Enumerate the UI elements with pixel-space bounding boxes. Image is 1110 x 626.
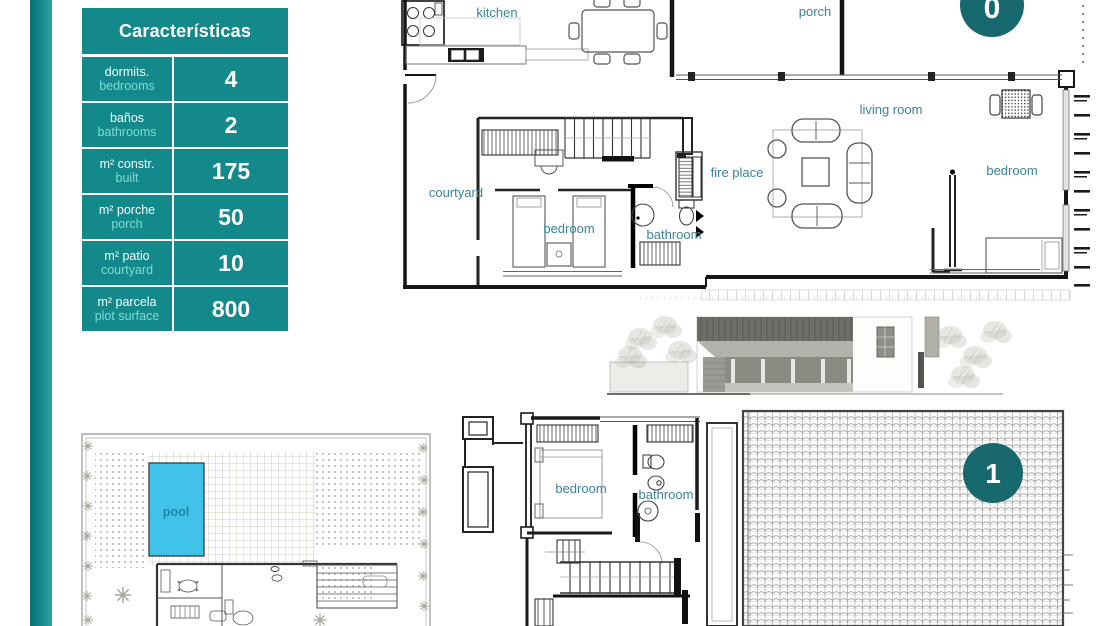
site-plan: pool bbox=[75, 428, 442, 626]
right-bedroom-furniture bbox=[986, 90, 1062, 273]
kitchen-label: kitchen bbox=[476, 5, 517, 20]
bathroom-label: bathroom bbox=[647, 227, 702, 242]
table-row: m² patio courtyard 10 bbox=[82, 241, 288, 285]
floor0-badge: 0 bbox=[960, 0, 1024, 37]
row-value: 2 bbox=[174, 103, 288, 147]
floor0-stairs bbox=[565, 118, 650, 162]
elevation-drawing bbox=[585, 295, 1015, 405]
right-edge-marks bbox=[702, 5, 1090, 300]
floor1-bathroom-label: bathroom bbox=[639, 487, 694, 502]
floor1-wardrobes bbox=[537, 425, 693, 442]
floor1-chimney bbox=[463, 417, 523, 532]
row-value: 4 bbox=[174, 57, 288, 101]
table-row: baños bathrooms 2 bbox=[82, 103, 288, 147]
characteristics-table: Características dormits. bedrooms 4 baño… bbox=[82, 8, 288, 333]
table-row: dormits. bedrooms 4 bbox=[82, 57, 288, 101]
row-label-es: m² patio bbox=[104, 249, 149, 263]
floor1-stairs bbox=[535, 540, 690, 626]
fire-place-label: fire place bbox=[711, 165, 764, 180]
row-label-en: courtyard bbox=[101, 263, 153, 277]
plan-sheet-page: Características dormits. bedrooms 4 baño… bbox=[0, 0, 1110, 626]
row-value: 10 bbox=[174, 241, 288, 285]
floor1-walls bbox=[521, 413, 700, 626]
row-label-en: bathrooms bbox=[97, 125, 156, 139]
bedroom-right-label: bedroom bbox=[986, 163, 1037, 178]
row-label-es: dormits. bbox=[105, 65, 149, 79]
row-label-es: baños bbox=[110, 111, 144, 125]
row-value: 175 bbox=[174, 149, 288, 193]
bedroom-center-label: bedroom bbox=[543, 221, 594, 236]
floor0-badge-number: 0 bbox=[984, 0, 1001, 25]
dining-table bbox=[569, 0, 667, 64]
floor1-roof bbox=[743, 411, 1073, 626]
porch-label: porch bbox=[799, 4, 832, 19]
living-room-furniture bbox=[768, 119, 872, 228]
fireplace-unit bbox=[676, 152, 702, 200]
courtyard-label: courtyard bbox=[429, 185, 483, 200]
floor1-plan: 1 bedroom bathroom bbox=[450, 405, 1075, 626]
row-label-en: bedrooms bbox=[99, 79, 155, 93]
table-row: m² parcela plot surface 800 bbox=[82, 287, 288, 331]
row-value: 800 bbox=[174, 287, 288, 331]
floor1-badge: 1 bbox=[963, 443, 1023, 503]
row-label-es: m² porche bbox=[99, 203, 155, 217]
table-row: m² porche porch 50 bbox=[82, 195, 288, 239]
floor0-plan: 0 kitchen porch living room fire place b… bbox=[390, 0, 1090, 302]
row-label-es: m² parcela bbox=[97, 295, 156, 309]
floor1-walkway bbox=[707, 423, 737, 626]
floor1-bedroom-label: bedroom bbox=[555, 481, 606, 496]
row-label-es: m² constr. bbox=[100, 157, 155, 171]
hall-wardrobe bbox=[482, 130, 563, 174]
row-value: 50 bbox=[174, 195, 288, 239]
table-title: Características bbox=[82, 8, 288, 54]
row-label-en: built bbox=[116, 171, 139, 185]
row-label-en: plot surface bbox=[95, 309, 160, 323]
pool: pool bbox=[149, 463, 204, 556]
row-label-en: porch bbox=[111, 217, 142, 231]
table-row: m² constr. built 175 bbox=[82, 149, 288, 193]
left-accent-bar bbox=[30, 0, 52, 626]
floor1-badge-number: 1 bbox=[985, 458, 1001, 489]
living-room-label: living room bbox=[860, 102, 923, 117]
porch-glazing bbox=[676, 72, 1062, 81]
paving-textures bbox=[95, 450, 420, 600]
pool-label: pool bbox=[163, 505, 189, 519]
